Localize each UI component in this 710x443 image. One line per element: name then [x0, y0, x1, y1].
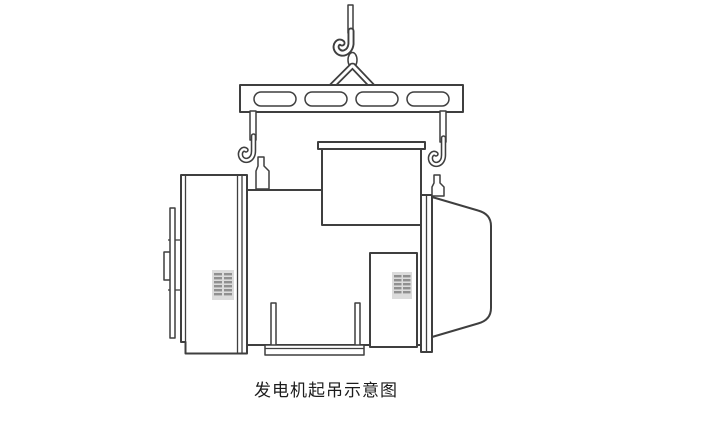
diagram-caption: 发电机起吊示意图 — [254, 381, 398, 400]
foot-post-left — [271, 303, 276, 347]
aux-box — [370, 253, 417, 347]
base-plate — [265, 345, 364, 355]
caption-row: 发电机起吊示意图 — [0, 376, 652, 401]
beam-slot-1 — [254, 92, 296, 106]
end-cone — [432, 197, 491, 337]
sling-bridle — [332, 66, 372, 86]
left-lifting-lug — [256, 157, 269, 189]
left-vent-grille — [212, 270, 234, 300]
terminal-box-lid — [318, 142, 425, 149]
left-hook-icon — [240, 136, 253, 160]
terminal-box — [322, 149, 421, 225]
diagram-canvas: 发电机起吊示意图 — [0, 0, 710, 443]
crane-hook-icon — [336, 31, 351, 53]
right-hook-icon — [430, 138, 443, 164]
fan-guard-bar — [170, 208, 175, 338]
right-vent-grille — [392, 272, 412, 299]
foot-post-right — [355, 303, 360, 347]
beam-slot-3 — [356, 92, 398, 106]
right-lifting-lug — [432, 175, 444, 196]
beam-slot-2 — [305, 92, 347, 106]
beam-slot-4 — [407, 92, 449, 106]
